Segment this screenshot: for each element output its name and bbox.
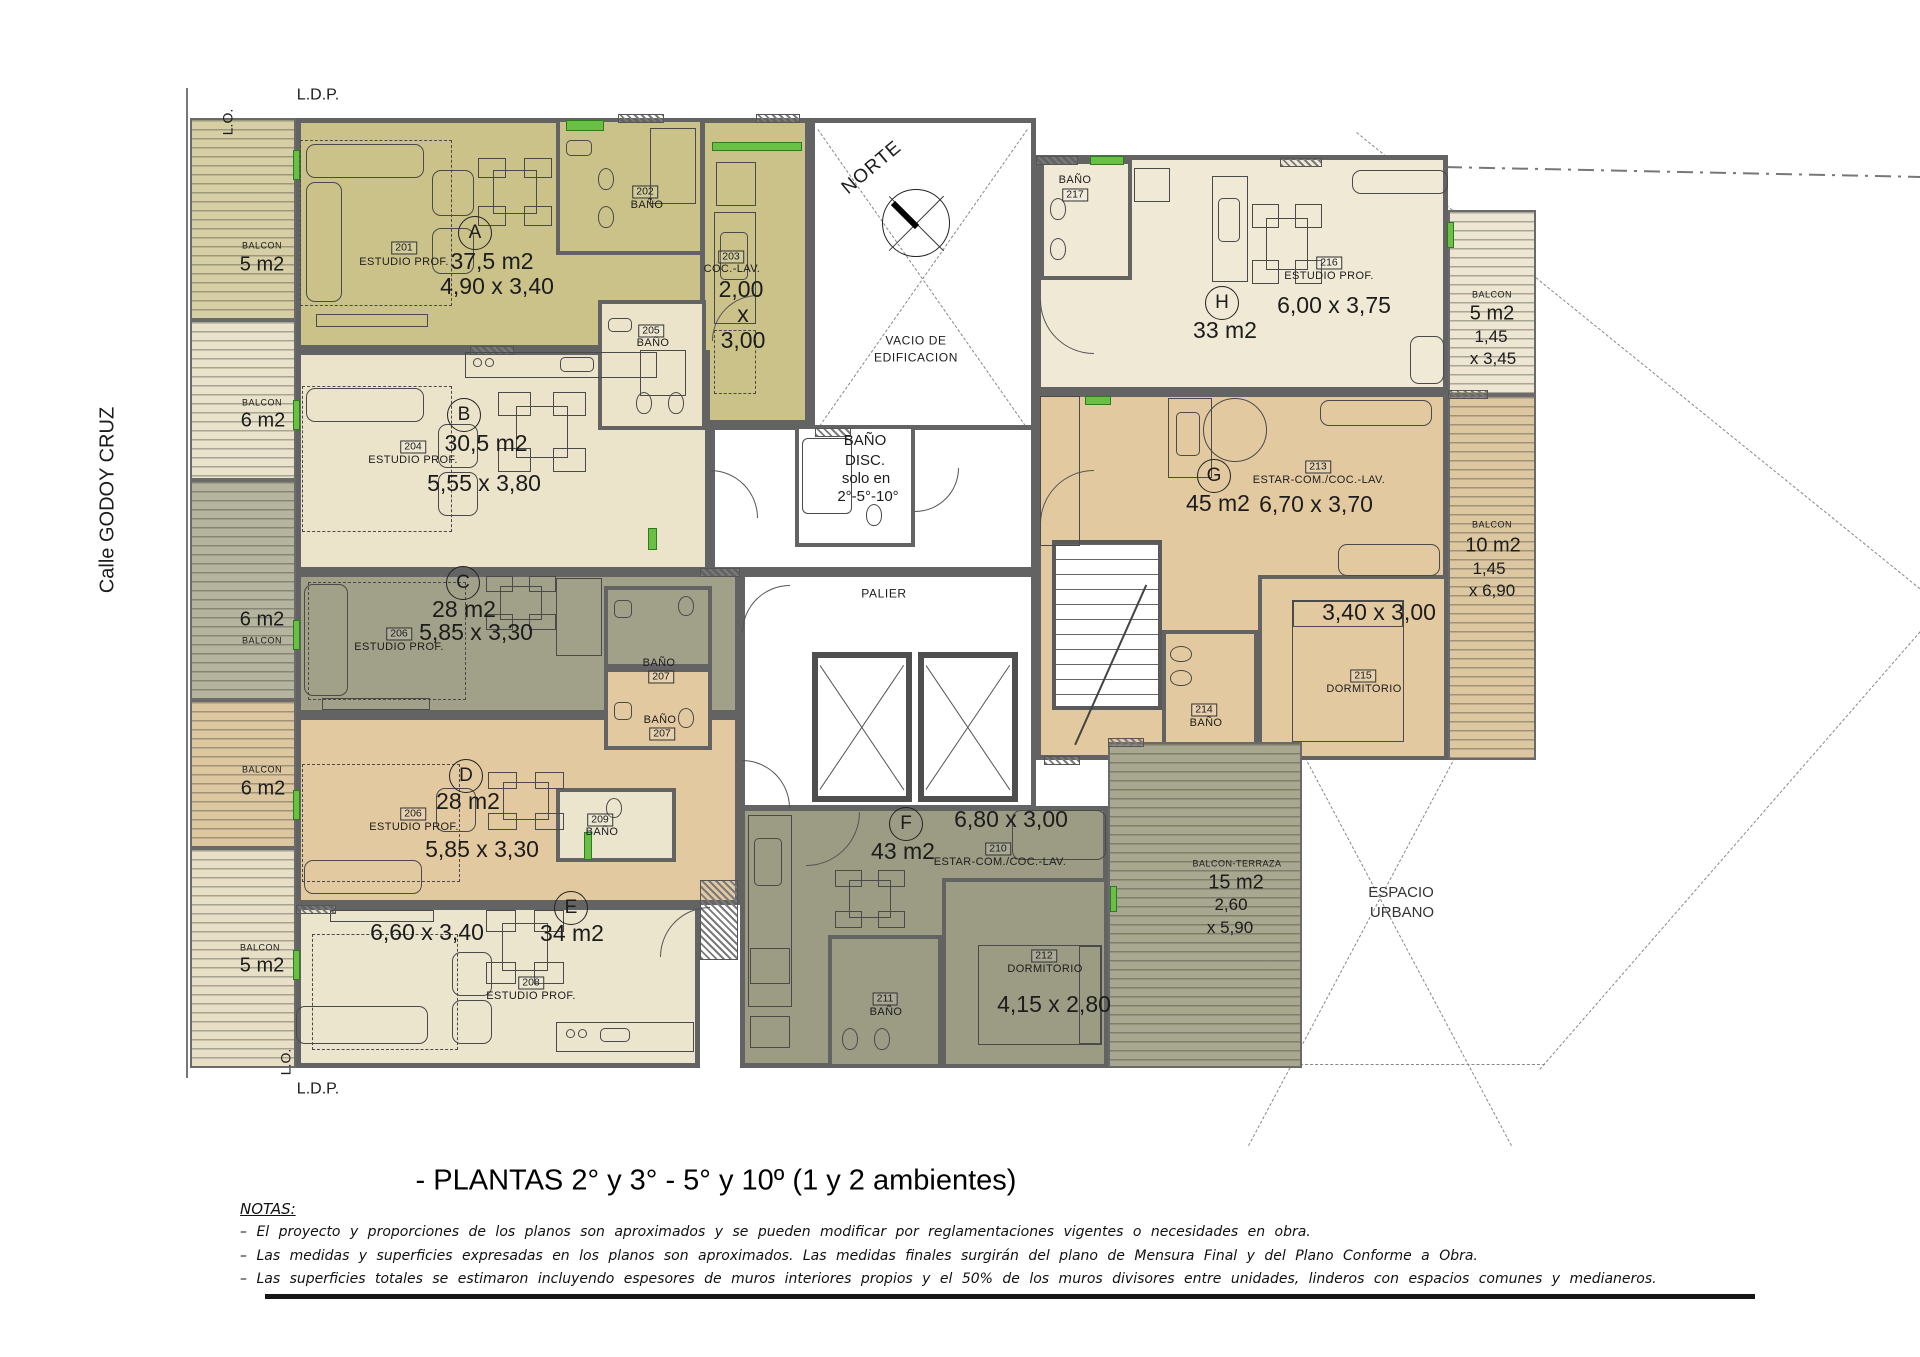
bidet [598,206,614,228]
unit-b-letter: B [447,398,481,432]
burner [578,1029,587,1038]
street-label: Calle GODOY CRUZ [98,407,119,593]
bath-205-id: 205 [638,324,664,337]
sofa [306,144,424,178]
balcon-terraza-f [1108,742,1302,1068]
balcony-b-area: 6 m2 [241,411,285,432]
wall-hatch [1036,156,1078,165]
bath-214-id: 214 [1191,703,1217,716]
vacio-label-2: EDIFICACION [874,352,958,365]
sofa [296,1006,428,1044]
balcony-h-dim1: 1,45 [1474,328,1507,346]
sink [1176,412,1200,456]
balcony-g-dim2: x 6,90 [1469,582,1515,600]
unit-e-area: 34 m2 [540,921,604,945]
washer [716,162,756,206]
kitchen-counter [556,578,602,656]
balcony-g-name: BALCON [1472,520,1512,529]
window-vent-mark [712,142,802,151]
boundary-ldp-bottom: L.D.P. [297,1082,339,1099]
balcony-h-area: 5 m2 [1470,304,1514,325]
balcony-a-name: BALCON [242,241,282,250]
unit-g-dorm-dims: 3,40 x 3,00 [1322,600,1436,624]
bidet [1170,670,1192,686]
wall-hatch [700,568,740,577]
vacio-edificacion [810,118,1036,440]
balcony-e-name: BALCON [240,943,280,952]
coclav-203-name: COC.-LAV. [704,264,761,276]
armchair [452,1000,492,1044]
dining-table [478,158,552,226]
floor-plan-canvas: Calle GODOY CRUZ L.D.P. L.O. L.O. L.D.P.… [0,0,1920,1357]
window-vent-mark [293,620,300,650]
toilet [636,392,652,414]
bath-209-id: 209 [587,813,613,826]
bath-207c-id: 207 [648,670,674,683]
unit-f-dorm-name: DORMITORIO [1007,964,1082,976]
sink [614,600,632,618]
unit-a-area: 37,5 m2 [450,249,533,273]
sink [560,357,594,372]
balcony-d-name: BALCON [242,765,282,774]
window-vent-mark [293,400,300,430]
fridge [750,948,790,984]
elevator-shaft-1 [812,652,912,802]
toilet [866,504,882,526]
window-vent-mark [293,150,300,180]
balcony-g-area: 10 m2 [1465,536,1521,557]
fridge [640,350,686,396]
bath-disc-line2: DISC. [845,453,885,469]
sofa [1320,400,1432,426]
unit-e-name: ESTUDIO PROF. [486,991,576,1003]
bath-217-name: BAÑO [1059,175,1092,187]
footer-rule [265,1294,1755,1299]
armchair [432,170,474,216]
plan-title: - PLANTAS 2° y 3° - 5° y 10º (1 y 2 ambi… [416,1165,1017,1198]
sofa [304,860,422,894]
boundary-lo-bottom: L.O. [279,1049,294,1075]
unit-c-id: 206 [386,627,412,640]
unit-a-name: ESTUDIO PROF. [359,257,449,269]
sofa [306,182,342,302]
lot-line-bottom [1300,1064,1545,1065]
bath-202-name: BAÑO [631,200,664,212]
boundary-lo-top: L.O. [221,109,236,135]
unit-f-dorm-dims: 4,15 x 2,80 [997,992,1111,1016]
unit-g-estar-name: ESTAR-COM./COC.-LAV. [1253,475,1385,487]
unit-f-estar-dims: 6,80 x 3,00 [954,807,1068,831]
coclav-203-dim-h: 3,00 [721,328,766,352]
bath-disc-line3: solo en [842,471,890,487]
north-compass-icon [882,189,950,257]
palier-label: PALIER [861,588,906,601]
toilet [678,708,694,728]
bidet [874,1028,890,1050]
sink [566,140,592,156]
stove [1134,168,1170,202]
sink [614,702,632,720]
kitchen-counter [1040,396,1080,546]
stove [750,1016,790,1048]
sink [754,838,782,886]
unit-b-name: ESTUDIO PROF. [368,455,458,467]
wall-hatch [1448,390,1488,399]
balcony-c-area: 6 m2 [240,610,284,631]
unit-a-id: 201 [391,241,417,254]
sink [600,1028,630,1042]
unit-b-area: 30,5 m2 [444,431,527,455]
bath-202-id: 202 [632,185,658,198]
toilet [678,596,694,616]
balcony-a [190,118,296,320]
dining-table [835,870,905,928]
window-vent-mark [1447,222,1454,248]
espacio-urbano-2: URBANO [1370,905,1434,921]
unit-e-dims: 6,60 x 3,40 [370,920,484,944]
window-vent-mark [1085,396,1111,405]
elevator-shaft-2 [918,652,1018,802]
balcony-b-name: BALCON [242,398,282,407]
unit-h-area: 33 m2 [1193,318,1257,342]
unit-d-dims: 5,85 x 3,30 [425,837,539,861]
bath-207c-room [604,586,712,668]
terraza-name: BALCON-TERRAZA [1192,859,1281,868]
sofa [304,584,348,696]
notes-heading: NOTAS: [240,1200,296,1218]
unit-c-letter: C [446,566,480,600]
balcony-a-area: 5 m2 [240,255,284,276]
bath-211-name: BAÑO [870,1007,903,1019]
wall-hatch [756,114,800,123]
lot-line-left [186,88,188,1078]
unit-f-dorm-id: 212 [1031,949,1057,962]
bidet [668,392,684,414]
window-vent-mark [293,950,300,980]
coclav-203-dim-w: 2,00 [719,277,764,301]
window-vent-mark [1090,156,1124,165]
bath-207d-id: 207 [649,727,675,740]
unit-b-dims: 5,55 x 3,80 [427,471,541,495]
armchair [1410,336,1444,384]
unit-g-estar-id: 213 [1305,460,1331,473]
wall-hatch [618,114,664,123]
unit-f-estar-id: 210 [985,842,1011,855]
unit-f-estar-name: ESTAR-COM./COC.-LAV. [934,857,1066,869]
wall-hatch [1108,738,1144,747]
round-table [1203,398,1267,462]
wall-hatch [1280,158,1322,167]
toilet [1170,646,1192,662]
balcony-e-area: 5 m2 [240,956,284,977]
bath-211-id: 211 [873,992,898,1005]
bath-209-name: BAÑO [586,827,619,839]
vacio-label-1: VACIO DE [885,335,946,348]
unit-a-letter: A [458,216,492,250]
unit-d-area: 28 m2 [436,789,500,813]
window-vent-mark [566,120,604,131]
note-line: – El proyecto y proporciones de los plan… [240,1224,1311,1240]
unit-h-name: ESTUDIO PROF. [1284,271,1374,283]
bath-207d-name: BAÑO [644,715,677,727]
tv-sideboard [316,314,428,327]
balcony-h-name: BALCON [1472,290,1512,299]
note-line: – Las medidas y superficies expresadas e… [240,1248,1478,1264]
window-vent-mark [293,790,300,820]
note-line: – Las superficies totales se estimaron i… [240,1271,1657,1287]
bath-217-id: 217 [1062,188,1088,201]
unit-e-id: 208 [518,976,544,989]
terraza-area: 15 m2 [1208,873,1264,894]
unit-g-dorm-id: 215 [1350,669,1376,682]
espacio-urbano-1: ESPACIO [1368,885,1434,901]
window-vent-mark [648,528,657,550]
toilet [598,168,614,190]
sofa [1338,544,1440,576]
unit-g-letter: G [1197,459,1231,493]
coclav-203-dim-x: x [737,302,749,326]
unit-d-name: ESTUDIO PROF. [369,822,459,834]
tv-sideboard [322,698,430,710]
unit-h-letter: H [1205,286,1239,320]
sofa [306,388,424,422]
unit-g-area: 45 m2 [1186,491,1250,515]
bath-207c-name: BAÑO [643,658,676,670]
sink [608,318,632,332]
boundary-ldp-top: L.D.P. [297,88,339,105]
terraza-dim2: x 5,90 [1207,919,1253,937]
bidet [1050,238,1066,260]
bath-205-name: BAÑO [637,338,670,350]
terraza-dim1: 2,60 [1214,896,1247,914]
sink [1218,198,1240,242]
unit-f-area: 43 m2 [871,839,935,863]
burner [566,1029,575,1038]
sofa [1352,170,1448,194]
bath-disc-line4: 2°-5°-10° [837,489,898,505]
balcony-h-dim2: x 3,45 [1470,350,1516,368]
unit-b-id: 204 [400,440,426,453]
window-vent-mark [1110,886,1117,912]
stairs [1052,540,1162,710]
coclav-203-id: 203 [718,250,744,263]
burner [485,358,494,367]
unit-a-dims: 4,90 x 3,40 [440,274,554,298]
unit-c-name: ESTUDIO PROF. [354,642,444,654]
balcony-c-name: BALCON [242,636,282,645]
unit-f-letter: F [889,807,923,841]
unit-g-estar-dims: 6,70 x 3,70 [1259,492,1373,516]
unit-c-area: 28 m2 [432,597,496,621]
burner [473,358,482,367]
unit-h-dims: 6,00 x 3,75 [1277,293,1391,317]
lot-diagonal-lower [1539,631,1920,1069]
unit-d-id: 206 [400,807,426,820]
toilet [842,1028,858,1050]
balcony-g-dim1: 1,45 [1472,560,1505,578]
wall-hatch [1044,756,1080,765]
balcony-c [190,480,296,700]
bath-disc-line1: BAÑO [844,433,887,449]
bath-214-name: BAÑO [1190,718,1223,730]
unit-g-dorm-name: DORMITORIO [1326,684,1401,696]
balcony-d-area: 6 m2 [241,779,285,800]
unit-h-id: 216 [1316,256,1342,269]
